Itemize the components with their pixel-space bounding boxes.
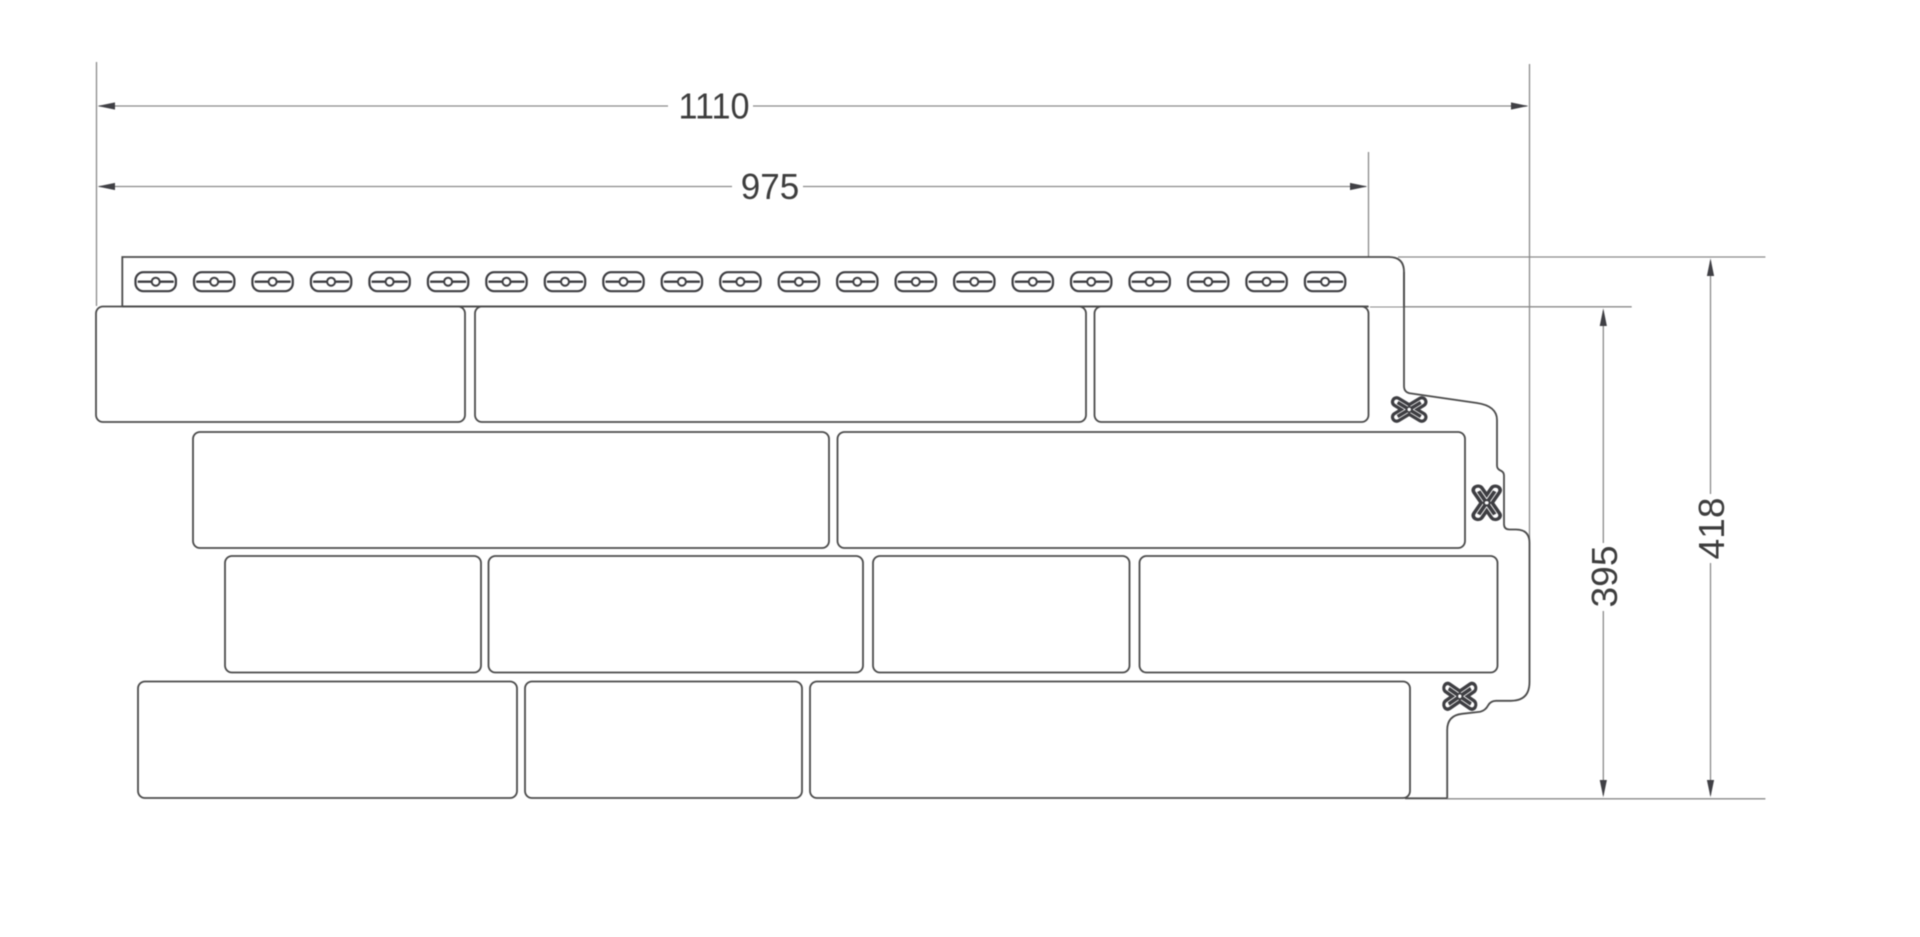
svg-text:395: 395 bbox=[1584, 546, 1625, 608]
svg-text:418: 418 bbox=[1691, 498, 1732, 560]
svg-text:975: 975 bbox=[741, 166, 800, 207]
svg-text:1110: 1110 bbox=[679, 86, 750, 127]
